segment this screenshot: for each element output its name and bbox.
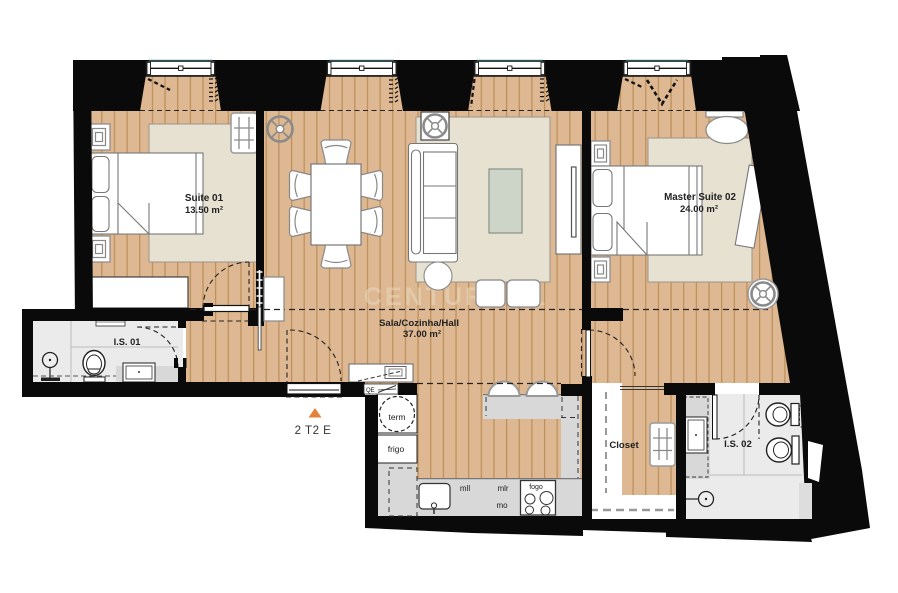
svg-text:QE: QE — [366, 388, 375, 394]
svg-text:I.S. 02: I.S. 02 — [724, 439, 752, 450]
svg-text:mo: mo — [496, 501, 508, 510]
svg-text:I.S. 01: I.S. 01 — [114, 337, 141, 347]
svg-text:frigo: frigo — [388, 444, 405, 454]
svg-text:13.50 m²: 13.50 m² — [185, 205, 223, 216]
svg-text:fogo: fogo — [529, 484, 543, 491]
svg-text:Sala/Cozinha/Hall: Sala/Cozinha/Hall — [379, 318, 459, 329]
svg-text:Master Suite 02: Master Suite 02 — [664, 192, 736, 203]
svg-text:37.00 m²: 37.00 m² — [403, 329, 441, 340]
svg-text:Closet: Closet — [609, 440, 639, 451]
svg-text:2 T2 E: 2 T2 E — [295, 425, 332, 437]
svg-text:Suite 01: Suite 01 — [185, 193, 224, 204]
svg-text:24.00 m²: 24.00 m² — [680, 204, 718, 215]
svg-text:term: term — [389, 412, 406, 422]
svg-text:mlr: mlr — [497, 484, 508, 493]
svg-text:mll: mll — [460, 484, 470, 493]
